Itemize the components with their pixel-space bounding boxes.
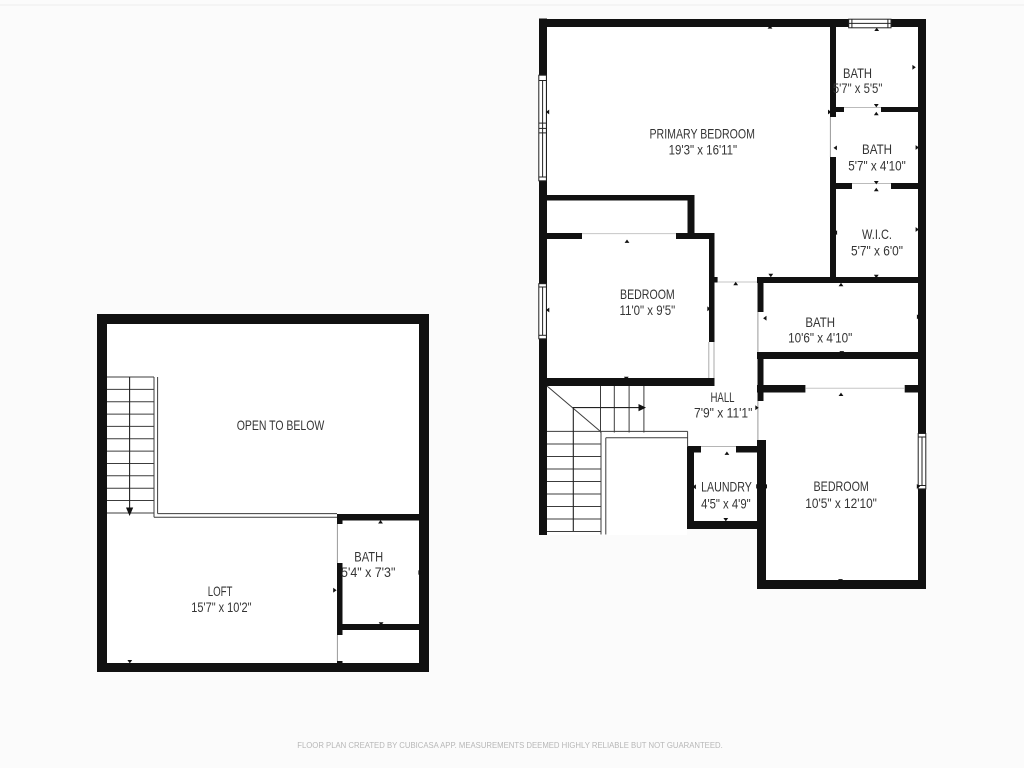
- svg-text:PRIMARY BEDROOM: PRIMARY BEDROOM: [650, 126, 755, 141]
- svg-text:LOFT: LOFT: [208, 584, 233, 599]
- svg-text:5'7" x 6'0": 5'7" x 6'0": [851, 244, 903, 259]
- svg-text:5'4" x 7'3": 5'4" x 7'3": [341, 565, 395, 580]
- svg-text:19'3" x 16'11": 19'3" x 16'11": [669, 142, 738, 157]
- svg-text:BATH: BATH: [843, 66, 872, 81]
- svg-text:5'7" x 5'5": 5'7" x 5'5": [833, 81, 883, 96]
- svg-text:W.I.C.: W.I.C.: [862, 227, 892, 242]
- svg-text:11'0" x 9'5": 11'0" x 9'5": [620, 303, 676, 318]
- svg-text:FLOOR PLAN CREATED BY CUBICASA: FLOOR PLAN CREATED BY CUBICASA APP. MEAS…: [297, 740, 723, 750]
- svg-text:HALL: HALL: [710, 390, 734, 405]
- svg-text:BEDROOM: BEDROOM: [620, 287, 675, 302]
- svg-text:LAUNDRY: LAUNDRY: [701, 480, 752, 495]
- svg-text:OPEN TO BELOW: OPEN TO BELOW: [237, 418, 325, 433]
- svg-text:10'6" x 4'10": 10'6" x 4'10": [788, 330, 852, 345]
- svg-text:7'9" x 11'1": 7'9" x 11'1": [694, 406, 753, 421]
- svg-text:BEDROOM: BEDROOM: [814, 479, 869, 494]
- svg-text:4'5" x 4'9": 4'5" x 4'9": [701, 497, 751, 512]
- svg-text:5'7" x 4'10": 5'7" x 4'10": [848, 159, 906, 174]
- svg-text:15'7" x 10'2": 15'7" x 10'2": [191, 600, 251, 615]
- svg-text:BATH: BATH: [862, 142, 892, 157]
- svg-text:BATH: BATH: [805, 315, 835, 330]
- svg-text:10'5" x 12'10": 10'5" x 12'10": [805, 496, 877, 511]
- svg-text:BATH: BATH: [354, 549, 383, 564]
